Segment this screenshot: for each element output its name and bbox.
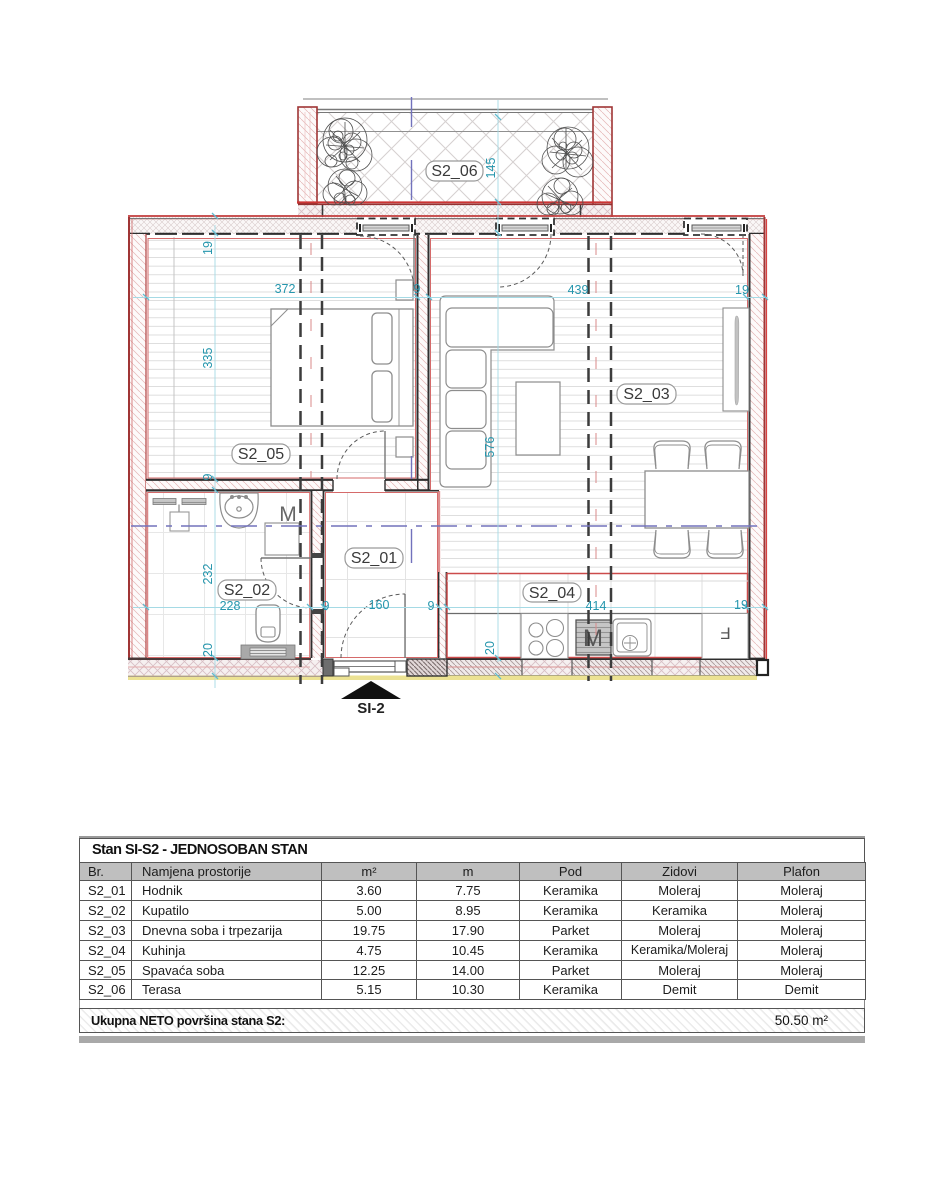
svg-text:9: 9 (201, 473, 215, 480)
svg-text:S2_02: S2_02 (224, 582, 270, 599)
svg-text:20: 20 (483, 641, 497, 655)
svg-text:S2_05: S2_05 (238, 446, 284, 463)
svg-text:576: 576 (483, 437, 497, 458)
svg-text:232: 232 (201, 564, 215, 585)
svg-text:160: 160 (369, 598, 390, 612)
svg-text:19: 19 (734, 598, 748, 612)
svg-text:SI-2: SI-2 (357, 700, 385, 717)
svg-text:M: M (583, 625, 603, 652)
svg-text:228: 228 (220, 599, 241, 613)
svg-text:M: M (279, 503, 297, 526)
svg-text:9: 9 (414, 282, 421, 296)
svg-text:414: 414 (586, 599, 607, 613)
svg-text:F: F (720, 624, 730, 643)
svg-text:S2_01: S2_01 (351, 550, 397, 567)
svg-text:19: 19 (201, 241, 215, 255)
svg-text:S2_03: S2_03 (623, 386, 669, 403)
svg-text:335: 335 (201, 348, 215, 369)
svg-text:372: 372 (275, 282, 296, 296)
svg-text:145: 145 (484, 158, 498, 179)
svg-text:9: 9 (323, 599, 330, 613)
svg-text:S2_04: S2_04 (529, 585, 575, 602)
svg-text:19: 19 (735, 283, 749, 297)
svg-text:20: 20 (201, 643, 215, 657)
svg-text:S2_06: S2_06 (431, 163, 477, 180)
svg-text:439: 439 (568, 283, 589, 297)
svg-text:9: 9 (428, 599, 435, 613)
